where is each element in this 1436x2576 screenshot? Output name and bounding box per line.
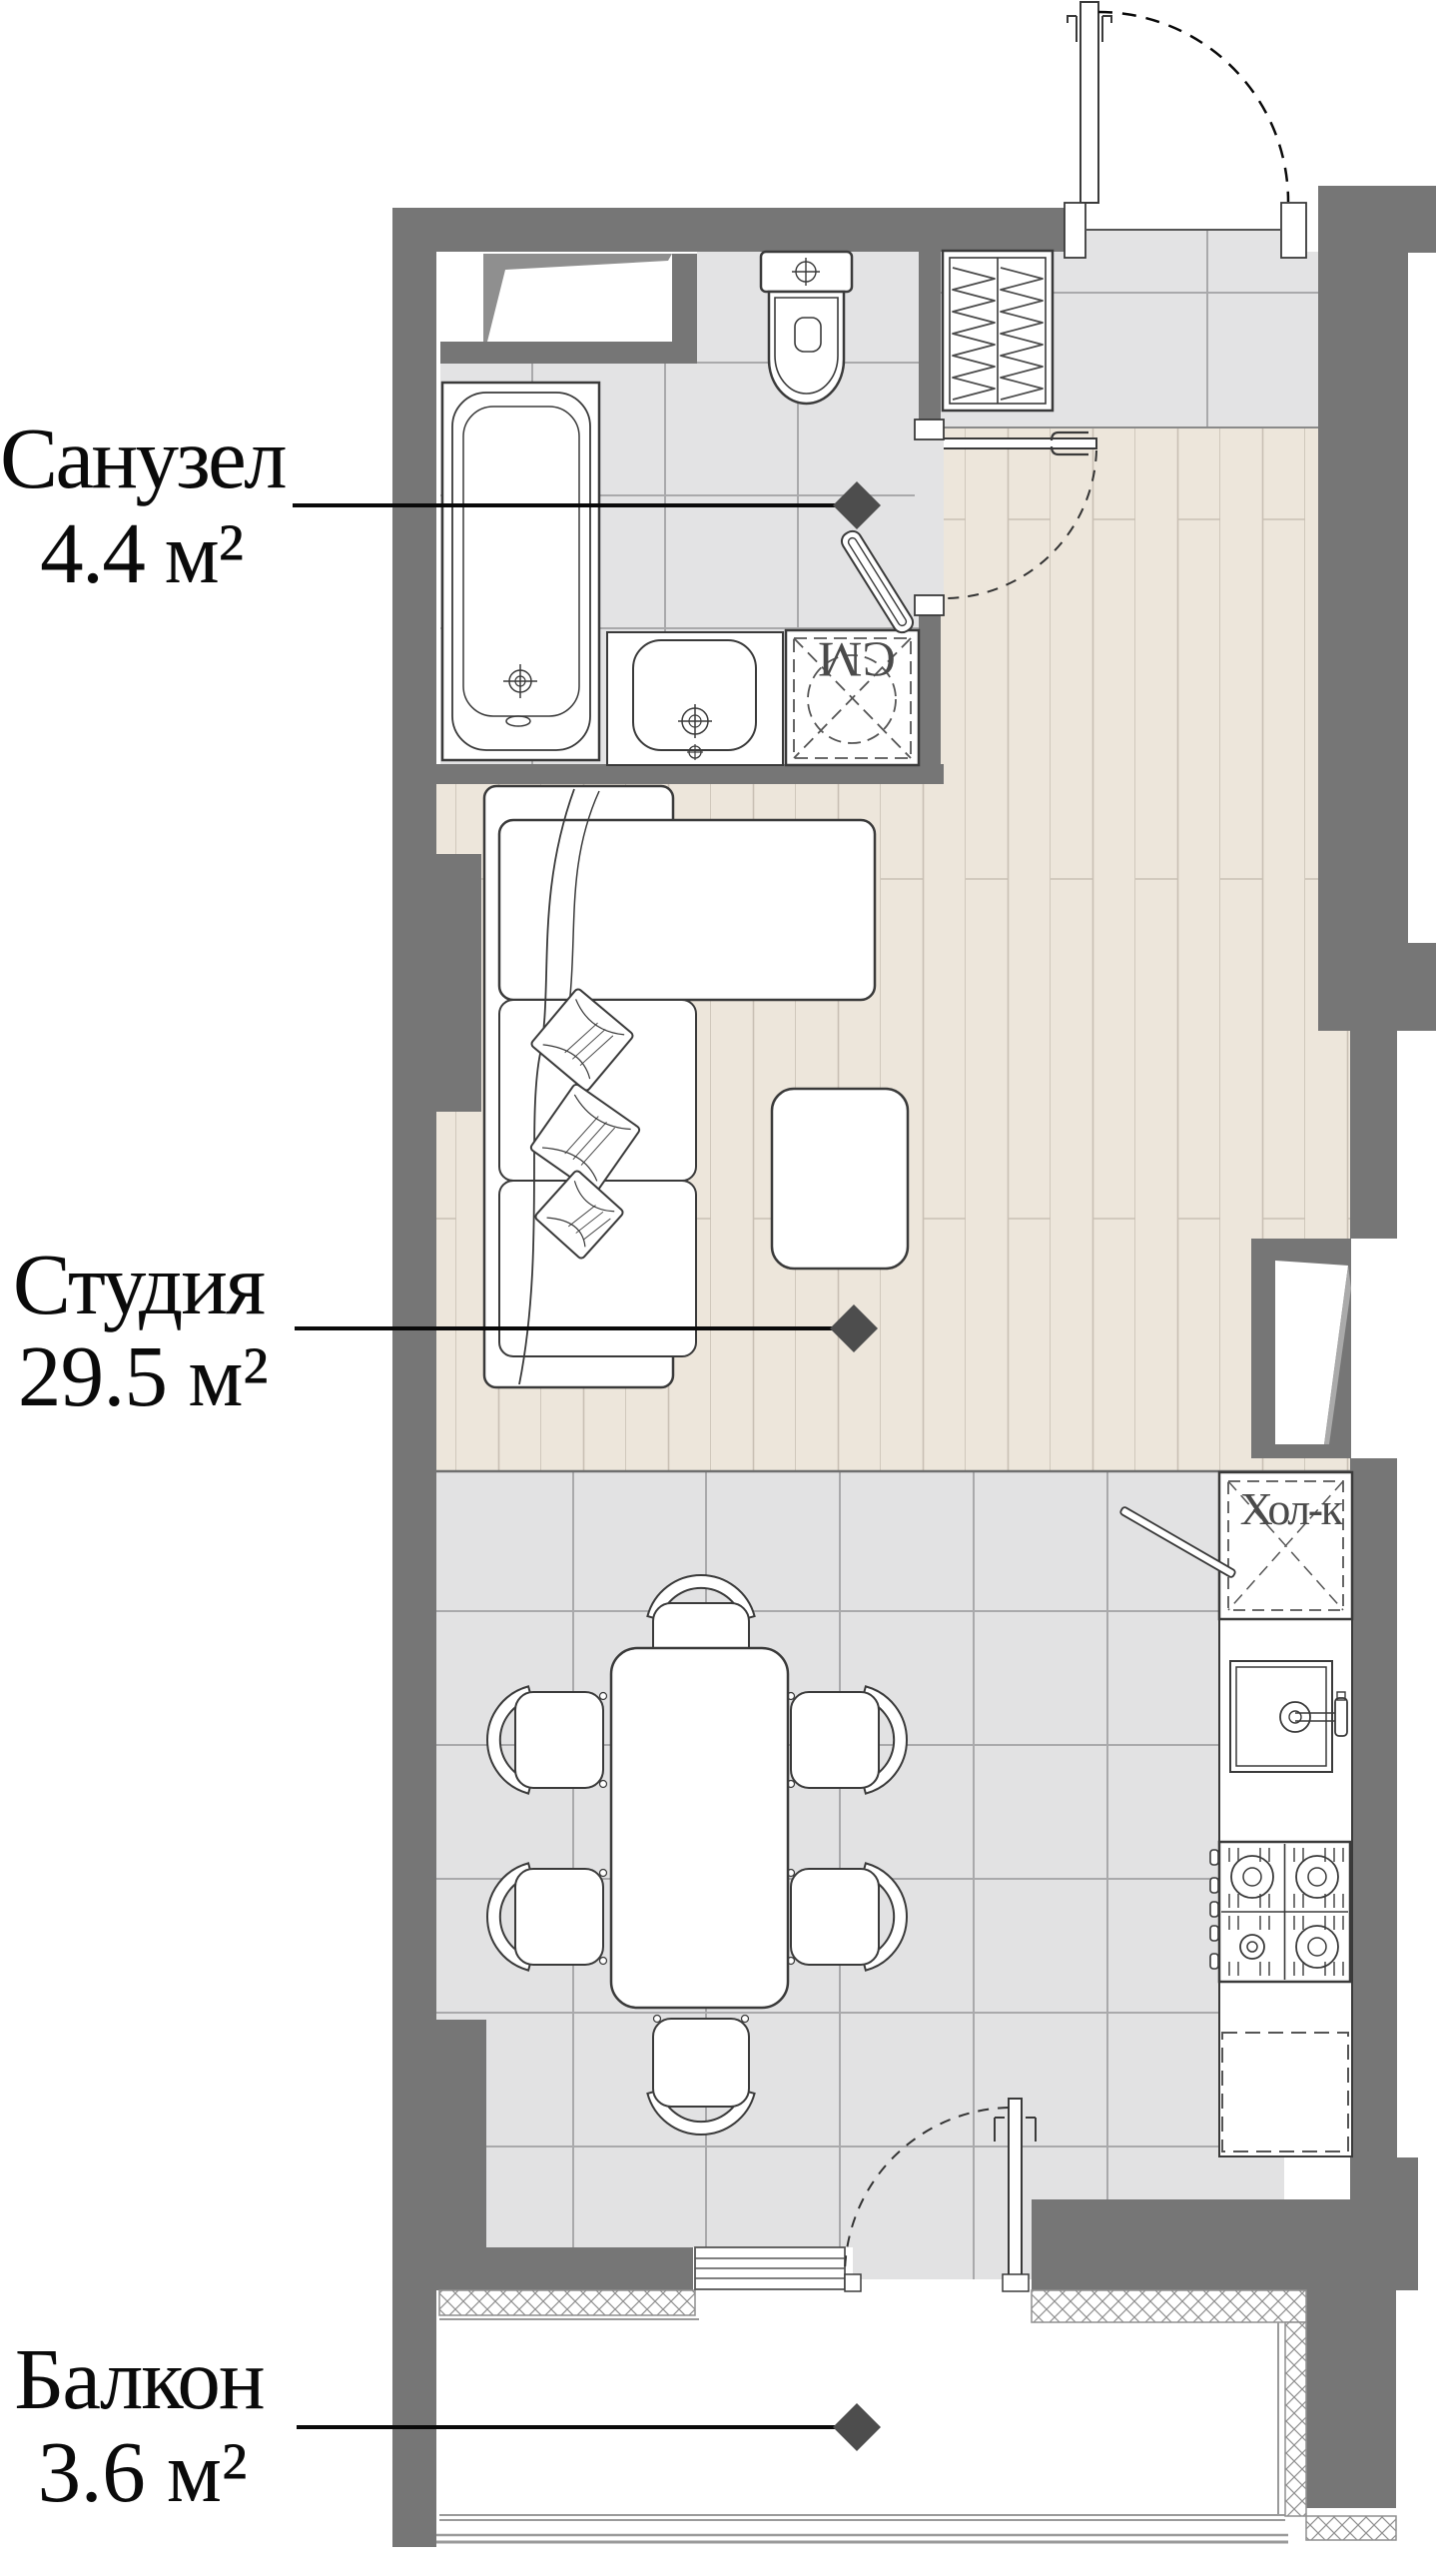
svg-text:4.4 м²: 4.4 м² [40,504,243,601]
svg-text:СМ: СМ [818,632,896,688]
svg-text:3.6 м²: 3.6 м² [38,2423,248,2520]
svg-text:Санузел: Санузел [0,410,286,506]
svg-text:29.5 м²: 29.5 м² [18,1327,268,1424]
svg-text:Балкон: Балкон [14,2330,264,2427]
svg-text:Студия: Студия [13,1236,265,1332]
svg-text:Хол-к: Хол-к [1240,1483,1344,1534]
